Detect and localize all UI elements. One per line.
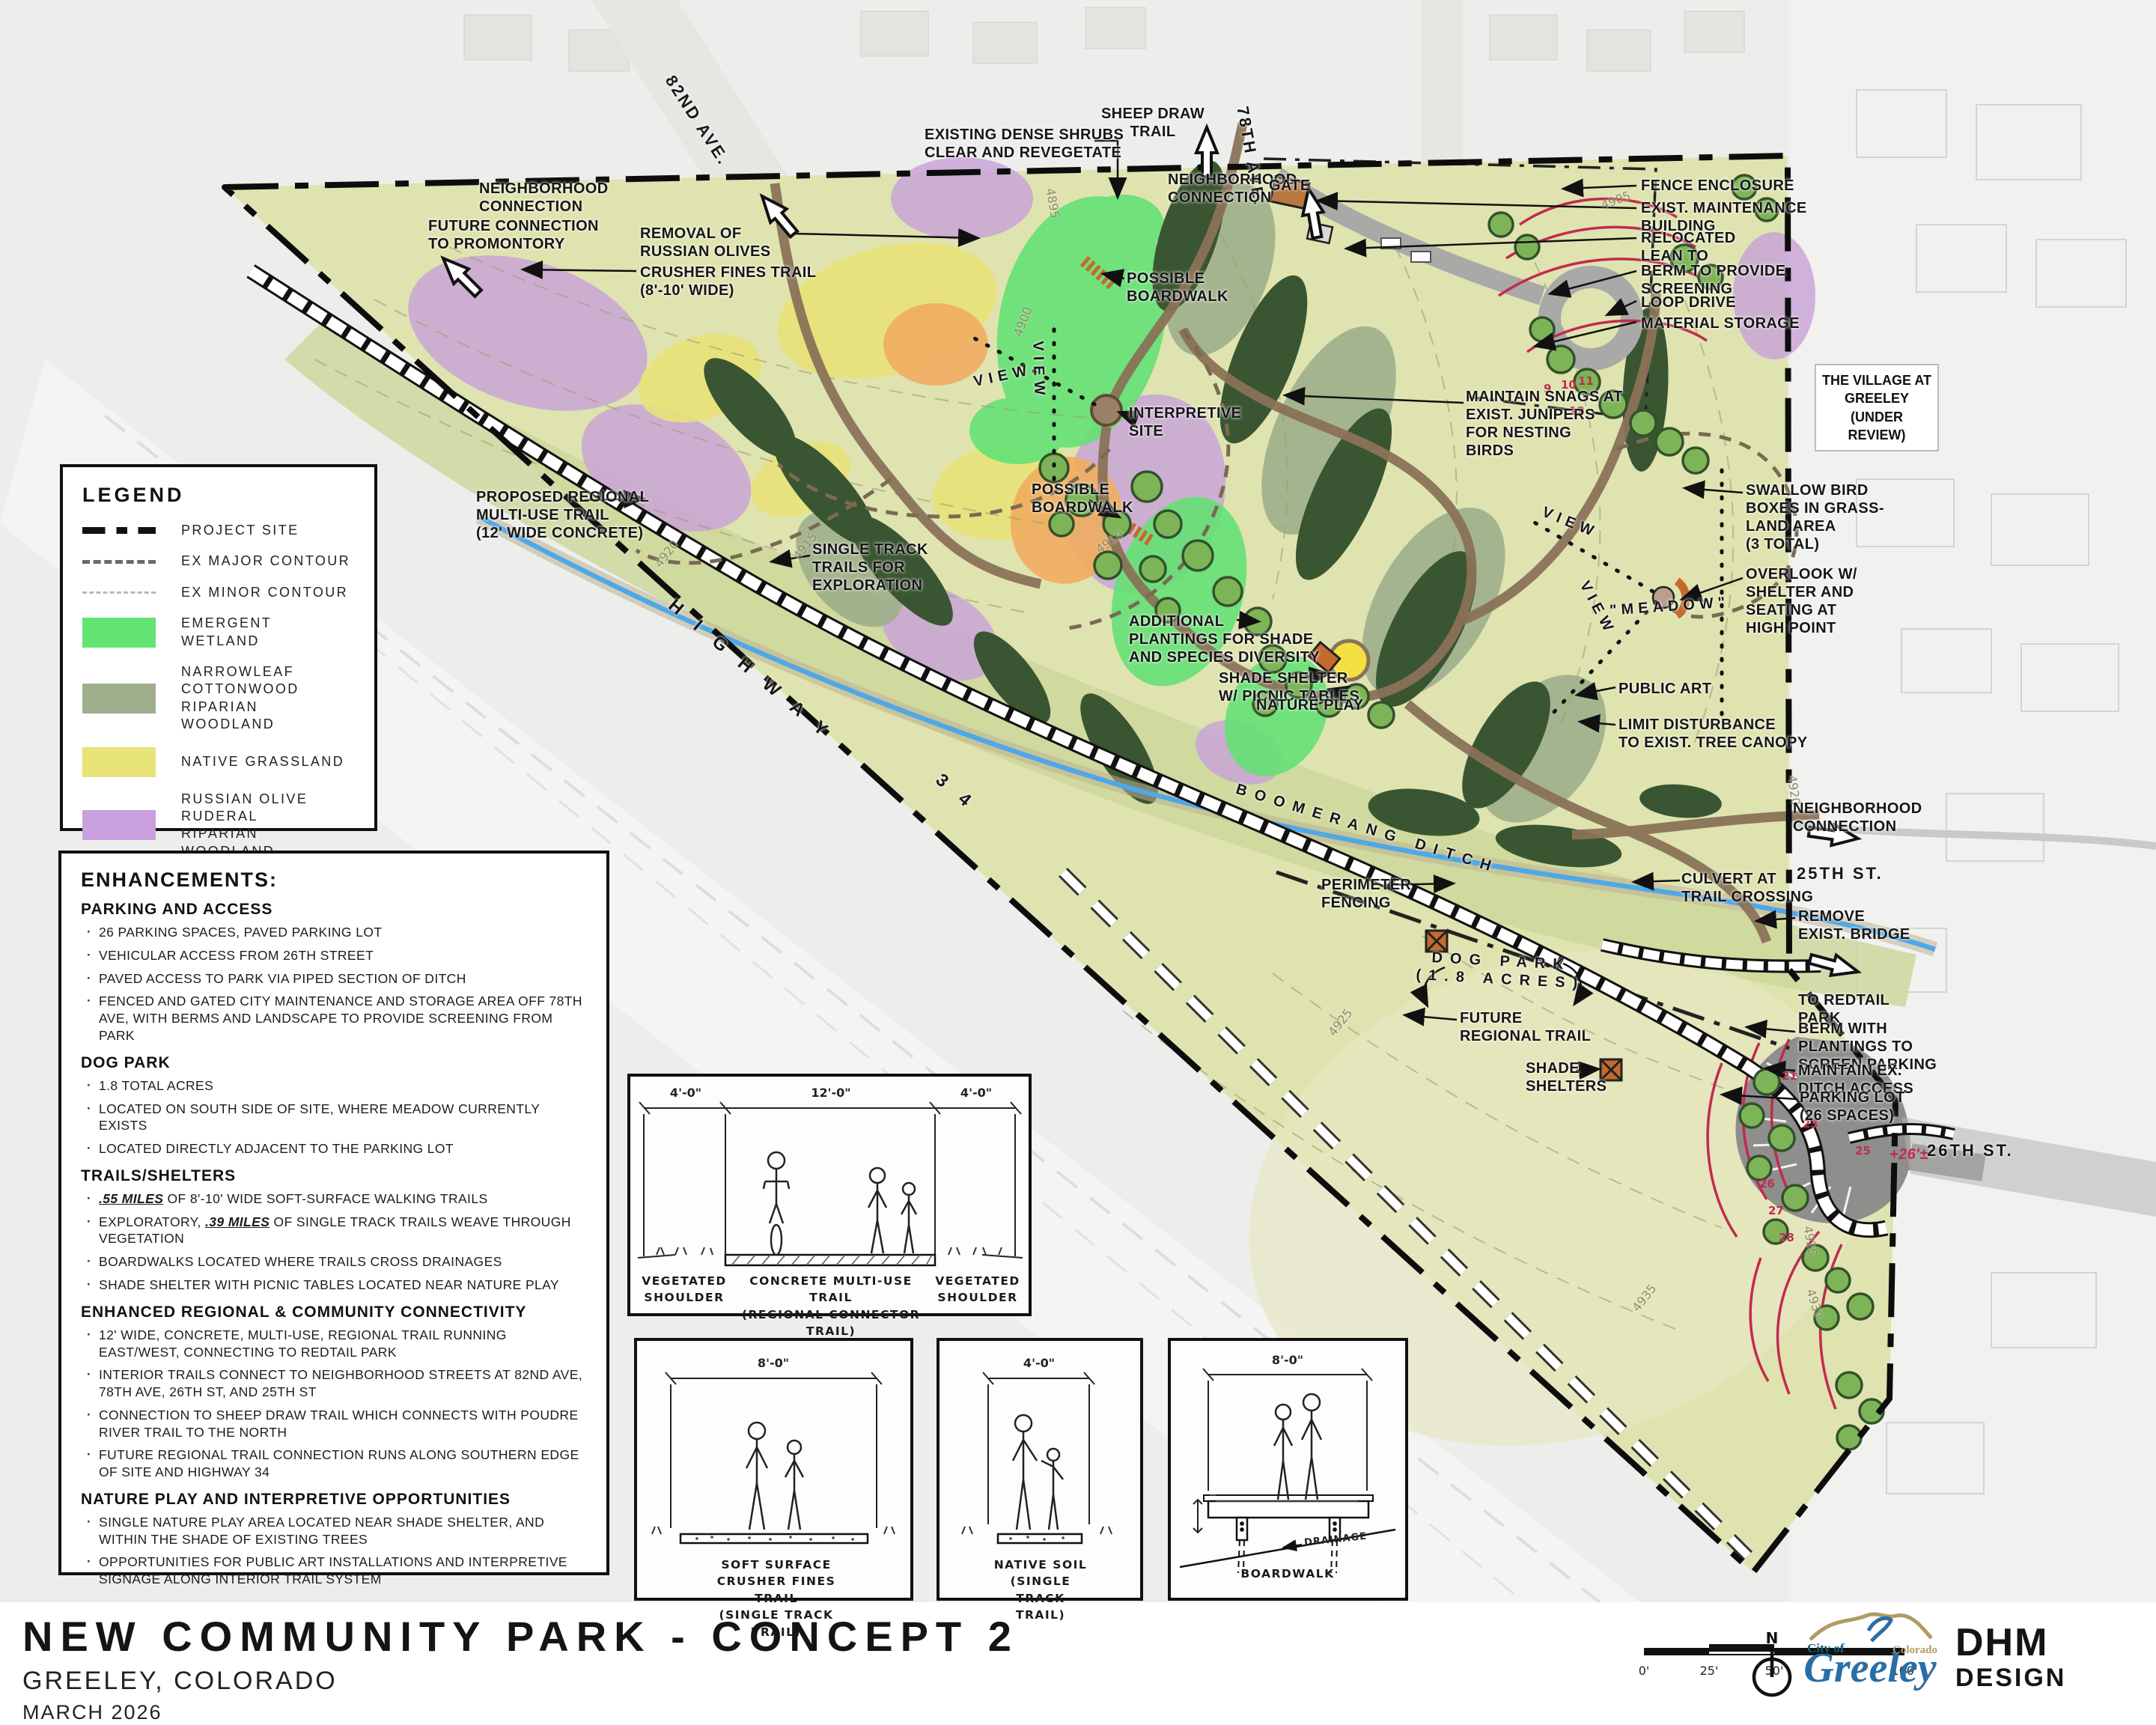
pedestrian-figures <box>868 1168 916 1253</box>
label-perimeter-fencing: PERIMETER FENCING <box>1321 876 1411 912</box>
78th-ave-road <box>1421 0 1463 163</box>
walking-figures <box>746 1423 803 1530</box>
section-heading-connectivity: ENHANCED REGIONAL & COMMUNITY CONNECTIVI… <box>81 1303 587 1321</box>
dim-right: 4'-0" <box>960 1086 992 1100</box>
dim-width: 8'-0" <box>1272 1353 1303 1367</box>
label-remove-exist-bridge: REMOVE EXIST. BRIDGE <box>1798 907 1910 943</box>
label-sheep-draw-trail: SHEEP DRAW TRAIL <box>1101 105 1205 141</box>
legend-item-cottonwood: NARROWLEAF COTTONWOOD RIPARIAN WOODLAND <box>82 663 355 734</box>
project-site-line-sample <box>82 527 156 534</box>
legend-title: LEGEND <box>82 485 355 505</box>
interpretive-site-node <box>1091 395 1121 425</box>
label-shade-shelters: SHADE SHELTERS <box>1526 1059 1607 1095</box>
label-crusher-fines-trail: CRUSHER FINES TRAIL (8'-10' WIDE) <box>640 264 816 299</box>
bullet: ·26 PARKING SPACES, PAVED PARKING LOT <box>87 924 587 941</box>
cottonwood-swatch <box>82 684 156 714</box>
label-interpretive-site: INTERPRETIVE SITE <box>1129 404 1241 440</box>
section-multiuse-trail: 4'-0" 12'-0" 4'-0" VEGETATED SHOULDER CO… <box>627 1074 1032 1316</box>
label-public-art: PUBLIC ART <box>1618 680 1711 698</box>
grade-label: 25 <box>1855 1144 1871 1157</box>
label-material-storage: MATERIAL STORAGE <box>1641 314 1800 332</box>
enhancements-title: ENHANCEMENTS: <box>81 870 587 890</box>
plan-sheet: 82ND AVE. NEIGHBORHOOD CONNECTION FUTURE… <box>0 0 2156 1725</box>
label-limit-disturbance: LIMIT DISTURBANCE TO EXIST. TREE CANOPY <box>1618 716 1808 752</box>
label-possible-boardwalk-n: POSSIBLE BOARDWALK <box>1127 270 1228 305</box>
section-heading-nature-play: NATURE PLAY AND INTERPRETIVE OPPORTUNITI… <box>81 1491 587 1509</box>
bullet: ·FUTURE REGIONAL TRAIL CONNECTION RUNS A… <box>87 1446 587 1481</box>
bullet: ·EXPLORATORY, .39 MILES OF SINGLE TRACK … <box>87 1214 587 1248</box>
label-additional-plantings: ADDITIONAL PLANTINGS FOR SHADE AND SPECI… <box>1129 612 1320 666</box>
label-removal-russian-olives: REMOVAL OF RUSSIAN OLIVES <box>640 225 771 261</box>
section-native-soil-trail: 4'-0" NATIVE SOIL (SINGLE TRACK TRAIL) <box>937 1338 1143 1601</box>
bullet: ·SINGLE NATURE PLAY AREA LOCATED NEAR SH… <box>87 1514 587 1548</box>
label-future-connection-promontory: FUTURE CONNECTION TO PROMONTORY <box>428 217 599 253</box>
grade-label: 26 <box>1759 1177 1775 1190</box>
dim-center: 12'-0" <box>811 1086 850 1100</box>
label-nature-play: NATURE PLAY <box>1256 696 1363 714</box>
legend-item-grassland: NATIVE GRASSLAND <box>82 747 355 777</box>
cyclist-figure <box>764 1152 789 1255</box>
adult-child-figures <box>1013 1415 1063 1530</box>
bullet: ·BOARDWALKS LOCATED WHERE TRAILS CROSS D… <box>87 1253 587 1271</box>
bullet: ·PAVED ACCESS TO PARK VIA PIPED SECTION … <box>87 970 587 988</box>
sheet-location: GREELEY, COLORADO <box>22 1668 1019 1694</box>
label-loop-drive: LOOP DRIVE <box>1641 293 1736 311</box>
boardwalk-figures <box>1274 1394 1321 1500</box>
label-neighborhood-connection-e: NEIGHBORHOOD CONNECTION <box>1793 800 1922 836</box>
scale-tick: 25' <box>1700 1664 1719 1678</box>
label-maintain-snags: MAINTAIN SNAGS AT EXIST. JUNIPERS FOR NE… <box>1466 388 1623 460</box>
label-fence-enclosure: FENCE ENCLOSURE <box>1641 177 1794 195</box>
caption-left-shoulder: VEGETATED SHOULDER <box>642 1273 727 1306</box>
label-possible-boardwalk-w: POSSIBLE BOARDWALK <box>1032 481 1133 517</box>
scale-tick: 0' <box>1639 1664 1650 1678</box>
legend-item-project-site: PROJECT SITE <box>82 522 355 539</box>
label-culvert-at-crossing: CULVERT AT TRAIL CROSSING <box>1681 870 1813 906</box>
grade-label: 27 <box>1768 1204 1784 1217</box>
aerial-village-east <box>1791 0 2156 1725</box>
grade-label: 11 <box>1578 374 1594 388</box>
bullet: ·INTERIOR TRAILS CONNECT TO NEIGHBORHOOD… <box>87 1366 587 1401</box>
bullet: ·LOCATED ON SOUTH SIDE OF SITE, WHERE ME… <box>87 1101 587 1135</box>
dim-left: 4'-0" <box>670 1086 701 1100</box>
section-heading-trails: TRAILS/SHELTERS <box>81 1167 587 1185</box>
label-relocated-lean-to: RELOCATED LEAN TO <box>1641 229 1736 265</box>
section-crusher-fines-trail: 8'-0" SOFT SURFACE CRUSHER FINES TRAIL (… <box>634 1338 913 1601</box>
russian-olive-swatch <box>82 810 156 840</box>
north-arrow-icon <box>1746 1647 1798 1700</box>
grade-label: 21 <box>1782 1069 1797 1083</box>
legend-panel: LEGEND PROJECT SITE EX MAJOR CONTOUR EX … <box>60 464 377 831</box>
bullet: ·VEHICULAR ACCESS FROM 26TH STREET <box>87 947 587 964</box>
label-parking-lot: PARKING LOT (26 SPACES) <box>1800 1089 1905 1125</box>
north-arrow: N <box>1746 1629 1798 1700</box>
sheet-title: NEW COMMUNITY PARK - CONCEPT 2 <box>22 1616 1019 1658</box>
legend-item-major-contour: EX MAJOR CONTOUR <box>82 553 355 570</box>
dhm-design-logo: DHM DESIGN <box>1955 1623 2066 1691</box>
city-of-greeley-logo: City of Greeley Colorado <box>1803 1608 1937 1689</box>
bullet: ·12' WIDE, CONCRETE, MULTI-USE, REGIONAL… <box>87 1327 587 1361</box>
minor-contour-line-sample <box>82 591 156 594</box>
caption-right-shoulder: VEGETATED SHOULDER <box>935 1273 1020 1306</box>
label-view-2: VIEW <box>1029 341 1049 401</box>
label-existing-dense-shrubs: EXISTING DENSE SHRUBS CLEAR AND REVEGETA… <box>925 126 1124 162</box>
bullet: ·OPPORTUNITIES FOR PUBLIC ART INSTALLATI… <box>87 1554 587 1588</box>
bullet: ·FENCED AND GATED CITY MAINTENANCE AND S… <box>87 993 587 1044</box>
label-overlook: OVERLOOK W/ SHELTER AND SEATING AT HIGH … <box>1746 565 1857 637</box>
label-berm-to-provide-screening: BERM TO PROVIDE SCREENING <box>1641 262 1785 298</box>
label-single-track-trails: SINGLE TRACK TRAILS FOR EXPLORATION <box>812 541 928 594</box>
section-d-figure <box>1171 1341 1405 1598</box>
title-block: NEW COMMUNITY PARK - CONCEPT 2 GREELEY, … <box>22 1616 1019 1723</box>
label-future-regional-trail: FUTURE REGIONAL TRAIL <box>1460 1009 1591 1045</box>
grassland-swatch <box>82 747 156 777</box>
sheet-date: MARCH 2026 <box>22 1703 1019 1723</box>
bullet: ·SHADE SHELTER WITH PICNIC TABLES LOCATE… <box>87 1277 587 1294</box>
caption-boardwalk: BOARDWALK <box>1240 1566 1334 1582</box>
bullet: ·CONNECTION TO SHEEP DRAW TRAIL WHICH CO… <box>87 1407 587 1441</box>
bullet: ·1.8 TOTAL ACRES <box>87 1077 587 1095</box>
label-gate: GATE <box>1269 177 1311 195</box>
label-village-at-greeley: THE VILLAGE AT GREELEY (UNDER REVIEW) <box>1815 364 1939 451</box>
grade-label: 28 <box>1779 1231 1794 1244</box>
label-neighborhood-connection-nw: NEIGHBORHOOD CONNECTION <box>479 180 609 216</box>
label-swallow-bird-boxes: SWALLOW BIRD BOXES IN GRASS- LAND AREA (… <box>1746 481 1884 553</box>
dim-width: 4'-0" <box>1023 1356 1055 1370</box>
label-proposed-regional-trail: PROPOSED REGIONAL MULTI-USE TRAIL (12' W… <box>476 488 649 542</box>
legend-item-emergent-wetland: EMERGENT WETLAND <box>82 615 355 650</box>
bullet: ·.55 MILES OF 8'-10' WIDE SOFT-SURFACE W… <box>87 1190 587 1208</box>
grass-ticks <box>657 1247 1002 1255</box>
label-26th-st: 26TH ST. <box>1927 1141 2014 1160</box>
label-grade-note: +26'± <box>1889 1146 1928 1163</box>
section-boardwalk: 8'-0" DRAINAGE BOARDWALK <box>1168 1338 1408 1601</box>
wetland-swatch <box>82 618 156 648</box>
bullet: ·LOCATED DIRECTLY ADJACENT TO THE PARKIN… <box>87 1140 587 1157</box>
legend-item-minor-contour: EX MINOR CONTOUR <box>82 584 355 601</box>
major-contour-line-sample <box>82 560 156 564</box>
enhancements-panel: ENHANCEMENTS: PARKING AND ACCESS ·26 PAR… <box>58 851 609 1575</box>
caption-trail: CONCRETE MULTI-USE TRAIL (REGIONAL CONNE… <box>732 1273 930 1340</box>
section-heading-parking: PARKING AND ACCESS <box>81 901 587 919</box>
dim-width: 8'-0" <box>758 1356 789 1370</box>
section-heading-dog-park: DOG PARK <box>81 1054 587 1072</box>
